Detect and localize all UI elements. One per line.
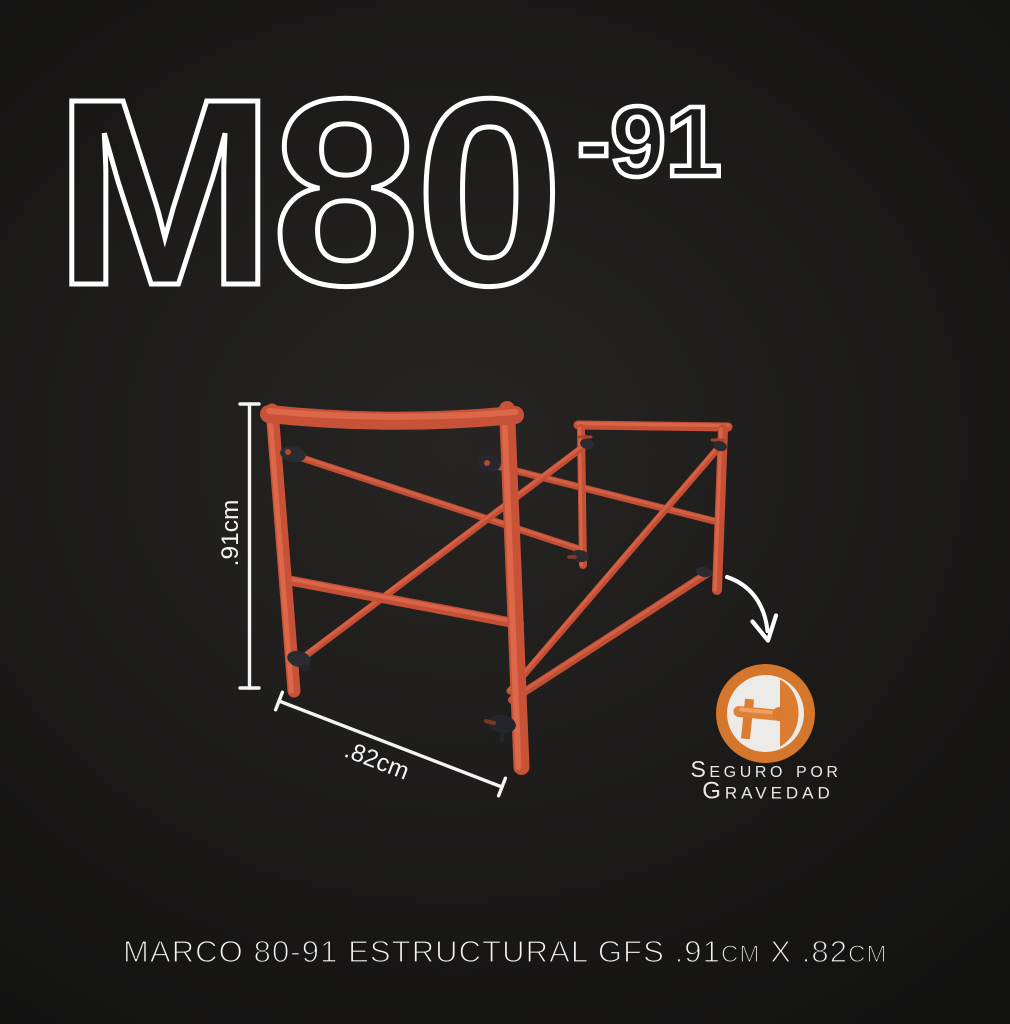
svg-text:.91cm: .91cm [217, 500, 244, 567]
svg-text:MARCO 80-91 ESTRUCTURAL GFS .9: MARCO 80-91 ESTRUCTURAL GFS .91CM X .82C… [123, 934, 888, 969]
svg-text:.82cm: .82cm [341, 736, 413, 785]
svg-text:-91: -91 [577, 86, 722, 198]
svg-text:M80: M80 [54, 44, 559, 341]
svg-text:Gravedad: Gravedad [702, 778, 834, 805]
